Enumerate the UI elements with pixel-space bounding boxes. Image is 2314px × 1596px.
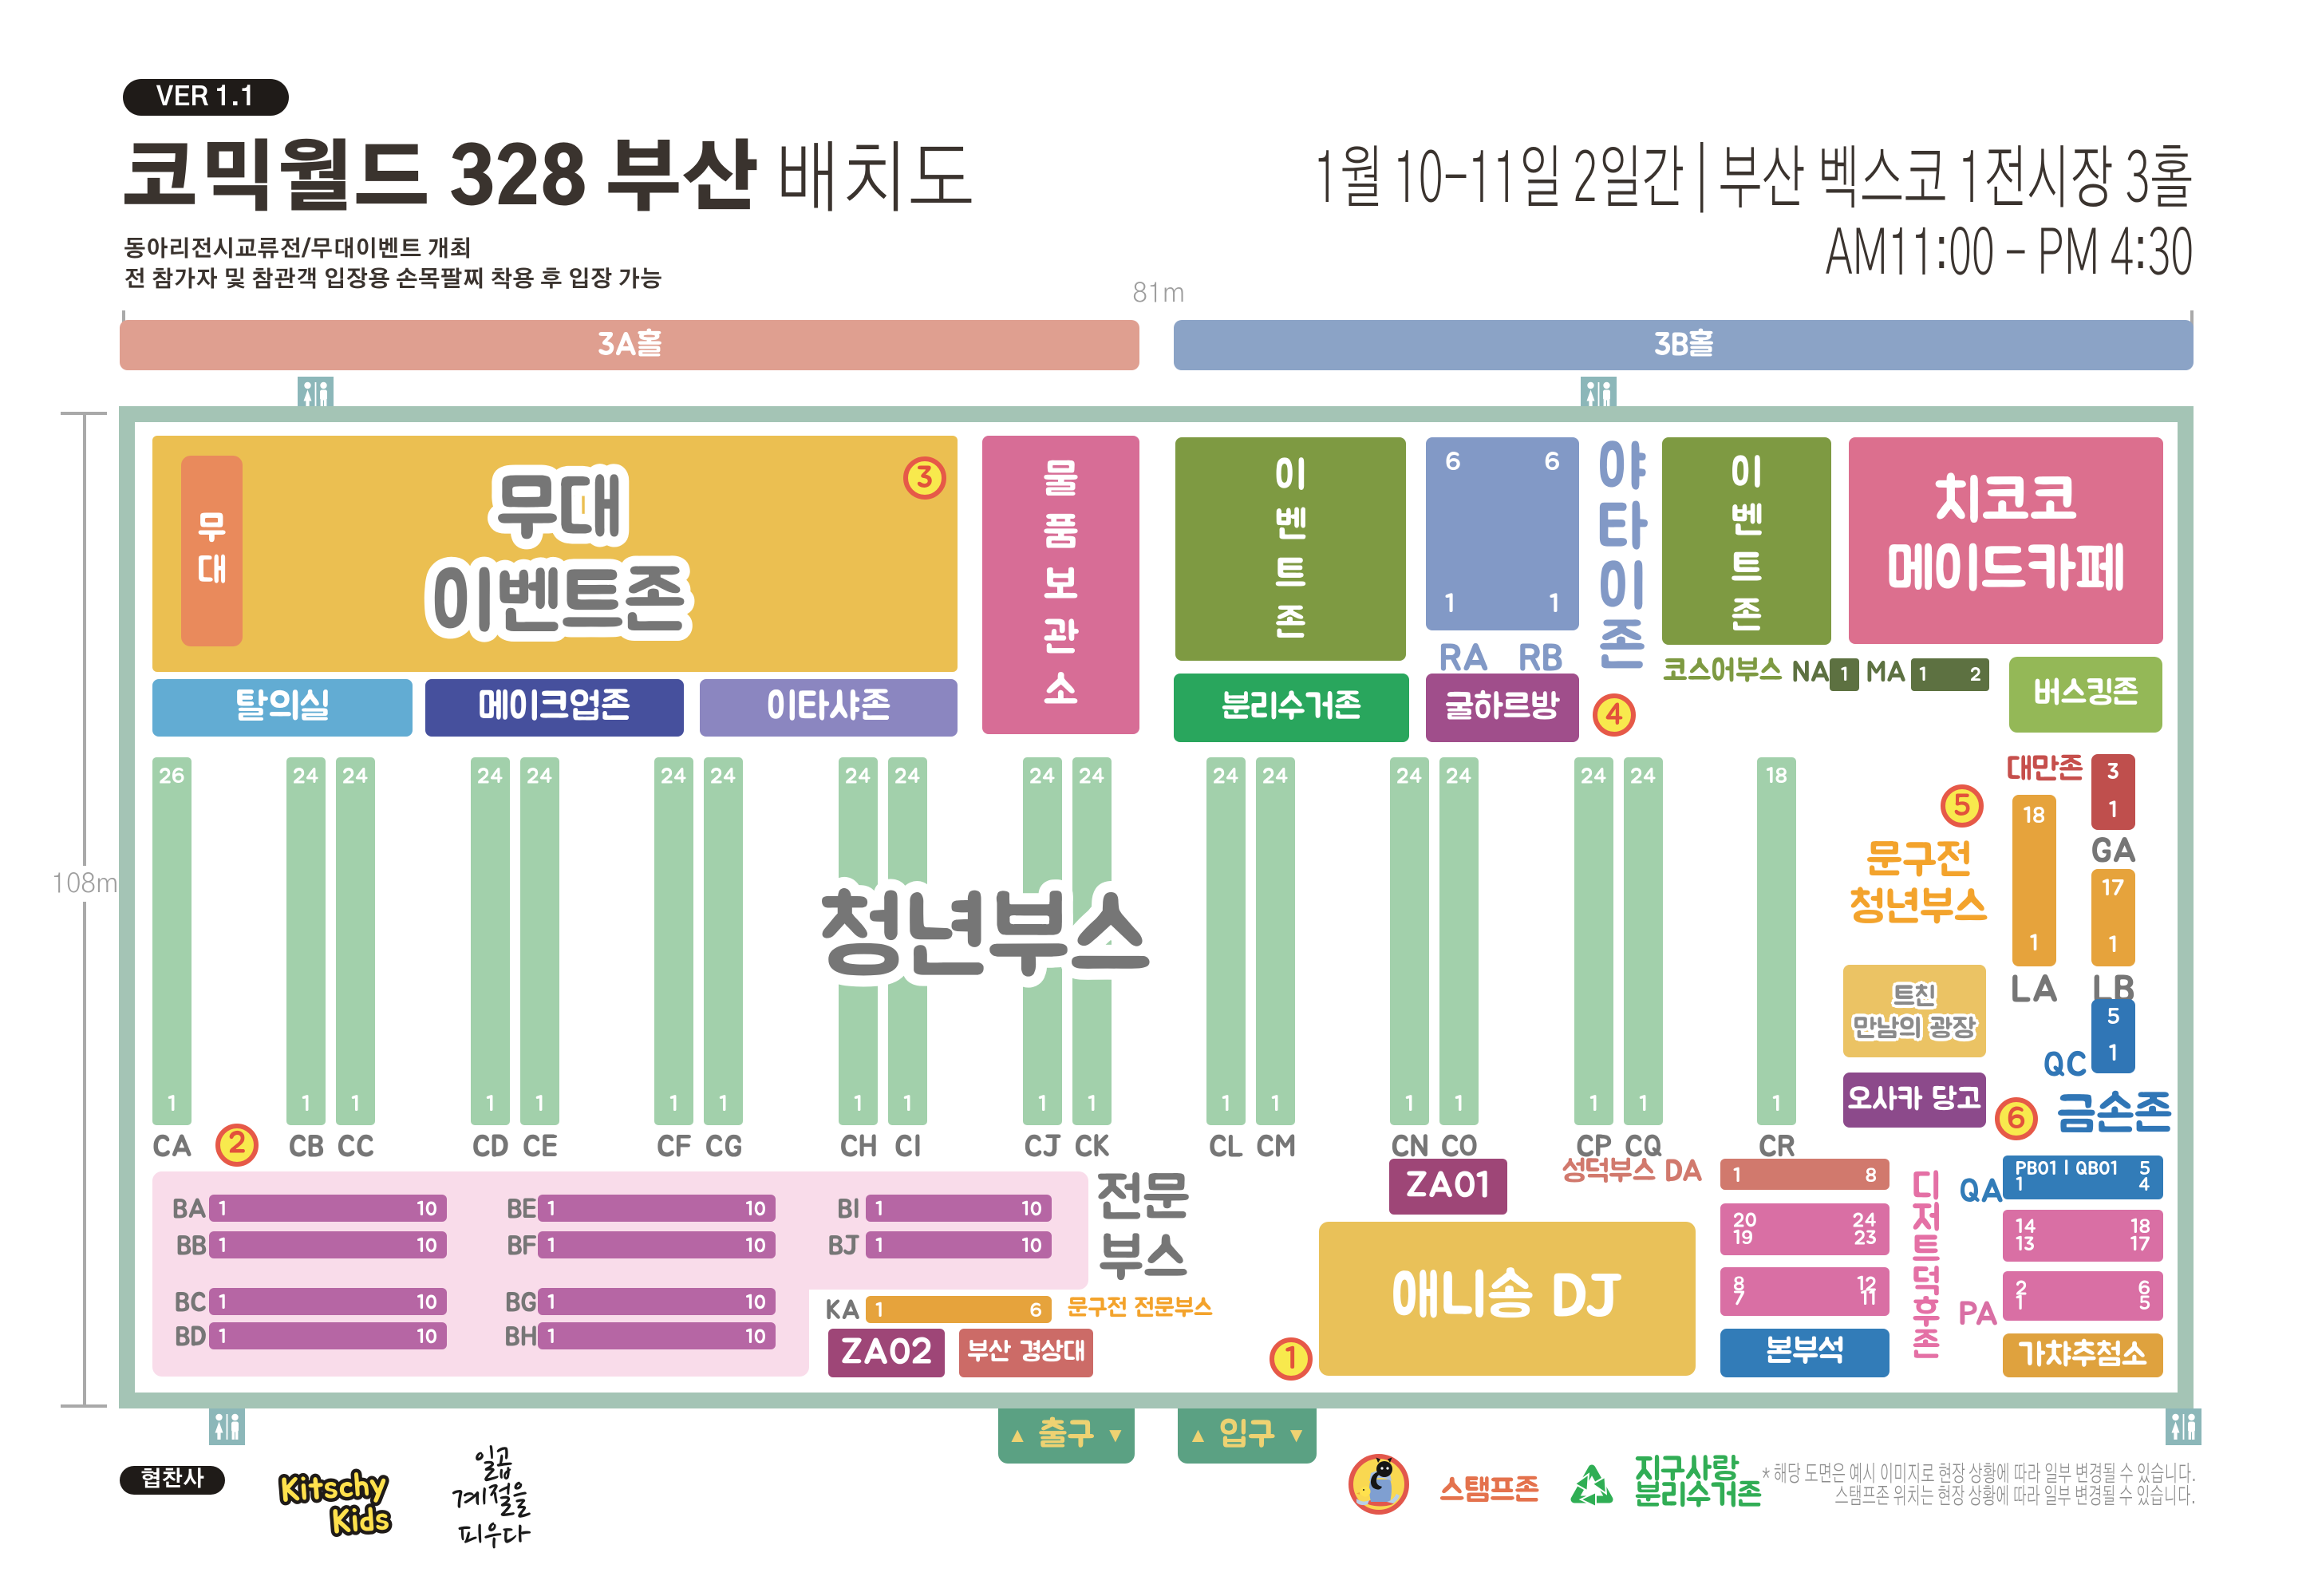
svg-text:전문: 전문 <box>1097 1171 1191 1229</box>
svg-text:Kids: Kids <box>331 1503 391 1540</box>
svg-text:청년부스: 청년부스 <box>819 887 1151 994</box>
svg-text:무대: 무대 <box>496 472 621 551</box>
svg-text:이벤트존: 이벤트존 <box>432 565 686 645</box>
svg-text:부스: 부스 <box>1099 1232 1188 1290</box>
